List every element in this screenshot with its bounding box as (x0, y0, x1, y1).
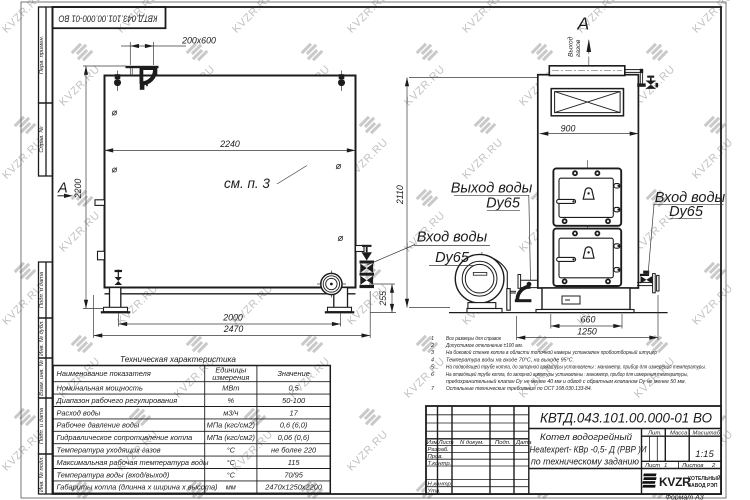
svg-text:см. п. 3: см. п. 3 (224, 176, 270, 191)
svg-text:3: 3 (431, 350, 434, 356)
svg-text:70/95: 70/95 (284, 470, 303, 479)
svg-text:4: 4 (431, 357, 434, 363)
svg-text:Утв.: Утв. (427, 488, 441, 494)
svg-text:°С: °С (227, 446, 236, 455)
svg-text:900: 900 (561, 123, 576, 133)
svg-text:КВТД.043.101.00.000-01 ВО: КВТД.043.101.00.000-01 ВО (59, 13, 158, 23)
svg-text:2: 2 (711, 463, 716, 469)
svg-text:°С: °С (227, 458, 236, 467)
svg-text:Взам. инв. №: Взам. инв. № (39, 360, 45, 396)
svg-text:Расход воды: Расход воды (57, 408, 101, 417)
svg-text:2240: 2240 (219, 139, 240, 149)
svg-text:200х600: 200х600 (181, 36, 216, 46)
svg-text:Масштаб: Масштаб (693, 430, 721, 436)
svg-text:не более 220: не более 220 (271, 446, 317, 455)
svg-text:2110: 2110 (395, 185, 405, 205)
svg-text:Перв. примен.: Перв. примен. (39, 36, 45, 75)
svg-text:Температура уходящих газов: Температура уходящих газов (57, 446, 161, 455)
svg-text:7: 7 (431, 386, 435, 392)
svg-text:2470х1250х2200: 2470х1250х2200 (264, 483, 323, 492)
svg-text:Допустимое отклонение ±100 мм: Допустимое отклонение ±100 мм. (445, 343, 523, 349)
svg-text:2470: 2470 (223, 324, 244, 334)
svg-text:м3/ч: м3/ч (223, 408, 238, 417)
svg-text:МПа (кгс/см2): МПа (кгс/см2) (207, 421, 256, 430)
svg-text:Максимальная рабочая температу: Максимальная рабочая температура воды (57, 458, 209, 467)
svg-text:Выход воды: Выход воды (451, 181, 533, 197)
svg-text:Значение: Значение (277, 369, 309, 378)
svg-text:Котел водогрейный: Котел водогрейный (540, 432, 633, 443)
svg-text:6: 6 (431, 372, 434, 378)
svg-text:KVZR: KVZR (659, 475, 691, 489)
svg-text:Диапазон рабочего регулировани: Диапазон рабочего регулирования (56, 396, 178, 405)
svg-text:Выход: Выход (567, 36, 575, 57)
svg-text:мм: мм (226, 483, 236, 492)
svg-text:Лит.: Лит. (647, 430, 662, 436)
svg-text:Инв. № дубл.: Инв. № дубл. (39, 320, 45, 356)
svg-text:по техническому заданию: по техническому заданию (531, 456, 639, 467)
svg-text:Изм: Изм (427, 440, 438, 446)
svg-text:А: А (577, 14, 590, 34)
svg-text:N докум.: N докум. (460, 440, 484, 446)
svg-text:МВт: МВт (222, 384, 239, 393)
svg-text:Подп.: Подп. (495, 440, 511, 446)
svg-text:Разраб.: Разраб. (428, 447, 449, 453)
svg-text:2200: 2200 (73, 179, 83, 200)
svg-text:1:15: 1:15 (695, 449, 714, 460)
svg-text:17: 17 (289, 408, 298, 417)
svg-text:Рабочее давление воды: Рабочее давление воды (57, 421, 140, 430)
svg-text:газов: газов (575, 39, 582, 57)
svg-text:Гидравлическое сопротивление к: Гидравлическое сопротивление котла (57, 433, 193, 442)
svg-text:1250: 1250 (577, 326, 597, 336)
svg-text:Подп. и дата: Подп. и дата (39, 271, 45, 308)
svg-text:На боковой стенке котла в обла: На боковой стенке котла в области топочн… (446, 349, 657, 356)
svg-text:предохранительный клапан Dу н: предохранительный клапан Dу не менее 40 … (446, 378, 686, 385)
svg-text:На подводящей трубе котла, д: На подводящей трубе котла, до запорной а… (446, 364, 706, 371)
svg-text:На отводящей трубе котла, до з: На отводящей трубе котла, до запорной ар… (446, 371, 688, 378)
svg-text:0,6 (6,0): 0,6 (6,0) (280, 421, 308, 430)
svg-text:Температура воды на входе 70°: Температура воды на входе 70°С, на выход… (446, 357, 574, 363)
svg-text:Н.контр.: Н.контр. (428, 482, 453, 488)
svg-text:Техническая характеристика: Техническая характеристика (120, 355, 236, 364)
svg-text:Все размеры для справок: Все размеры для справок (446, 336, 501, 342)
svg-text:0,06 (0,6): 0,06 (0,6) (278, 433, 310, 442)
svg-text:Инв. № подл.: Инв. № подл. (39, 456, 45, 492)
svg-text:Лист: Лист (644, 463, 660, 469)
svg-text:660: 660 (581, 315, 596, 325)
svg-text:2: 2 (430, 343, 434, 349)
svg-text:А: А (57, 181, 68, 197)
svg-text:%: % (228, 396, 235, 405)
svg-text:измерения: измерения (212, 373, 249, 382)
svg-text:2000: 2000 (222, 313, 243, 323)
svg-text:Вход воды: Вход воды (417, 230, 488, 246)
svg-text:50-100: 50-100 (282, 396, 306, 405)
svg-text:Формат А3: Формат А3 (665, 495, 703, 500)
svg-text:Листов: Листов (681, 463, 703, 469)
svg-text:КВТД.043.101.00.000-01 ВО: КВТД.043.101.00.000-01 ВО (540, 411, 712, 426)
svg-text:Справ. №: Справ. № (39, 126, 45, 152)
svg-text:115: 115 (288, 458, 301, 467)
svg-text:Т.контр.: Т.контр. (428, 461, 452, 467)
svg-text:°С: °С (227, 470, 236, 479)
svg-text:Лист: Лист (438, 440, 454, 446)
svg-text:КОТЕЛЬНЫЙ: КОТЕЛЬНЫЙ (688, 474, 721, 482)
svg-text:ЗАВОД РЭП: ЗАВОД РЭП (688, 483, 718, 489)
svg-text:Heatexpert- КВр -0,5- Д (РВР ): Heatexpert- КВр -0,5- Д (РВР )И (530, 444, 647, 455)
svg-text:Габариты котла (длинна х ширин: Габариты котла (длинна х ширина х высота… (57, 483, 219, 492)
svg-text:Наименование показателя: Наименование показателя (57, 369, 151, 378)
svg-text:Dy65: Dy65 (669, 204, 704, 220)
svg-text:Пров.: Пров. (428, 454, 444, 460)
svg-text:Подп. и дата: Подп. и дата (39, 407, 45, 444)
svg-text:0,5: 0,5 (288, 384, 299, 393)
svg-text:Номинальная мощность: Номинальная мощность (57, 384, 143, 393)
svg-text:1: 1 (664, 463, 667, 469)
svg-text:1: 1 (431, 336, 434, 342)
svg-text:МПа (кгс/см2): МПа (кгс/см2) (207, 433, 256, 442)
svg-text:Масса: Масса (670, 430, 688, 436)
svg-text:Dy65: Dy65 (435, 250, 470, 266)
svg-text:255: 255 (378, 291, 388, 307)
svg-text:Dy65: Dy65 (486, 196, 521, 212)
svg-text:Температура воды (вход/выход): Температура воды (вход/выход) (57, 470, 170, 479)
svg-text:Остальные технические требован: Остальные технические требования по ОСТ … (446, 386, 592, 392)
